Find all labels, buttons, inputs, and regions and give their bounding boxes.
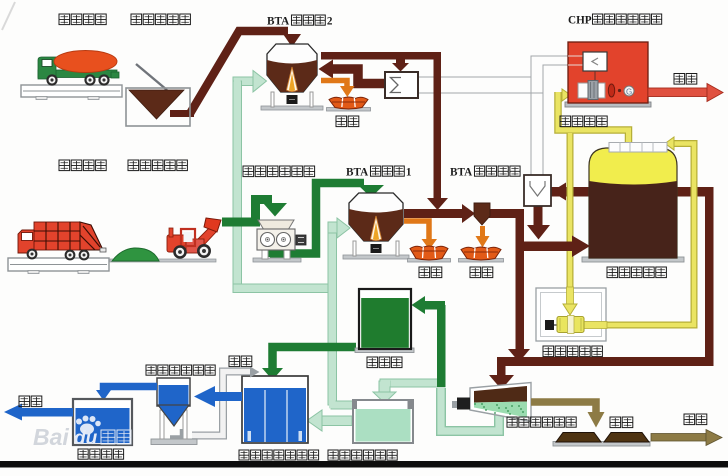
svg-text:Bai: Bai [33,424,69,450]
svg-text:BTA: BTA [267,16,289,28]
svg-text:2: 2 [327,16,333,28]
svg-text:G: G [626,88,632,97]
svg-text:du: du [74,428,98,449]
svg-text:CHP: CHP [568,15,592,27]
svg-text:BTA: BTA [450,167,472,179]
svg-text:BTA: BTA [346,167,368,179]
svg-text:1: 1 [406,167,412,179]
